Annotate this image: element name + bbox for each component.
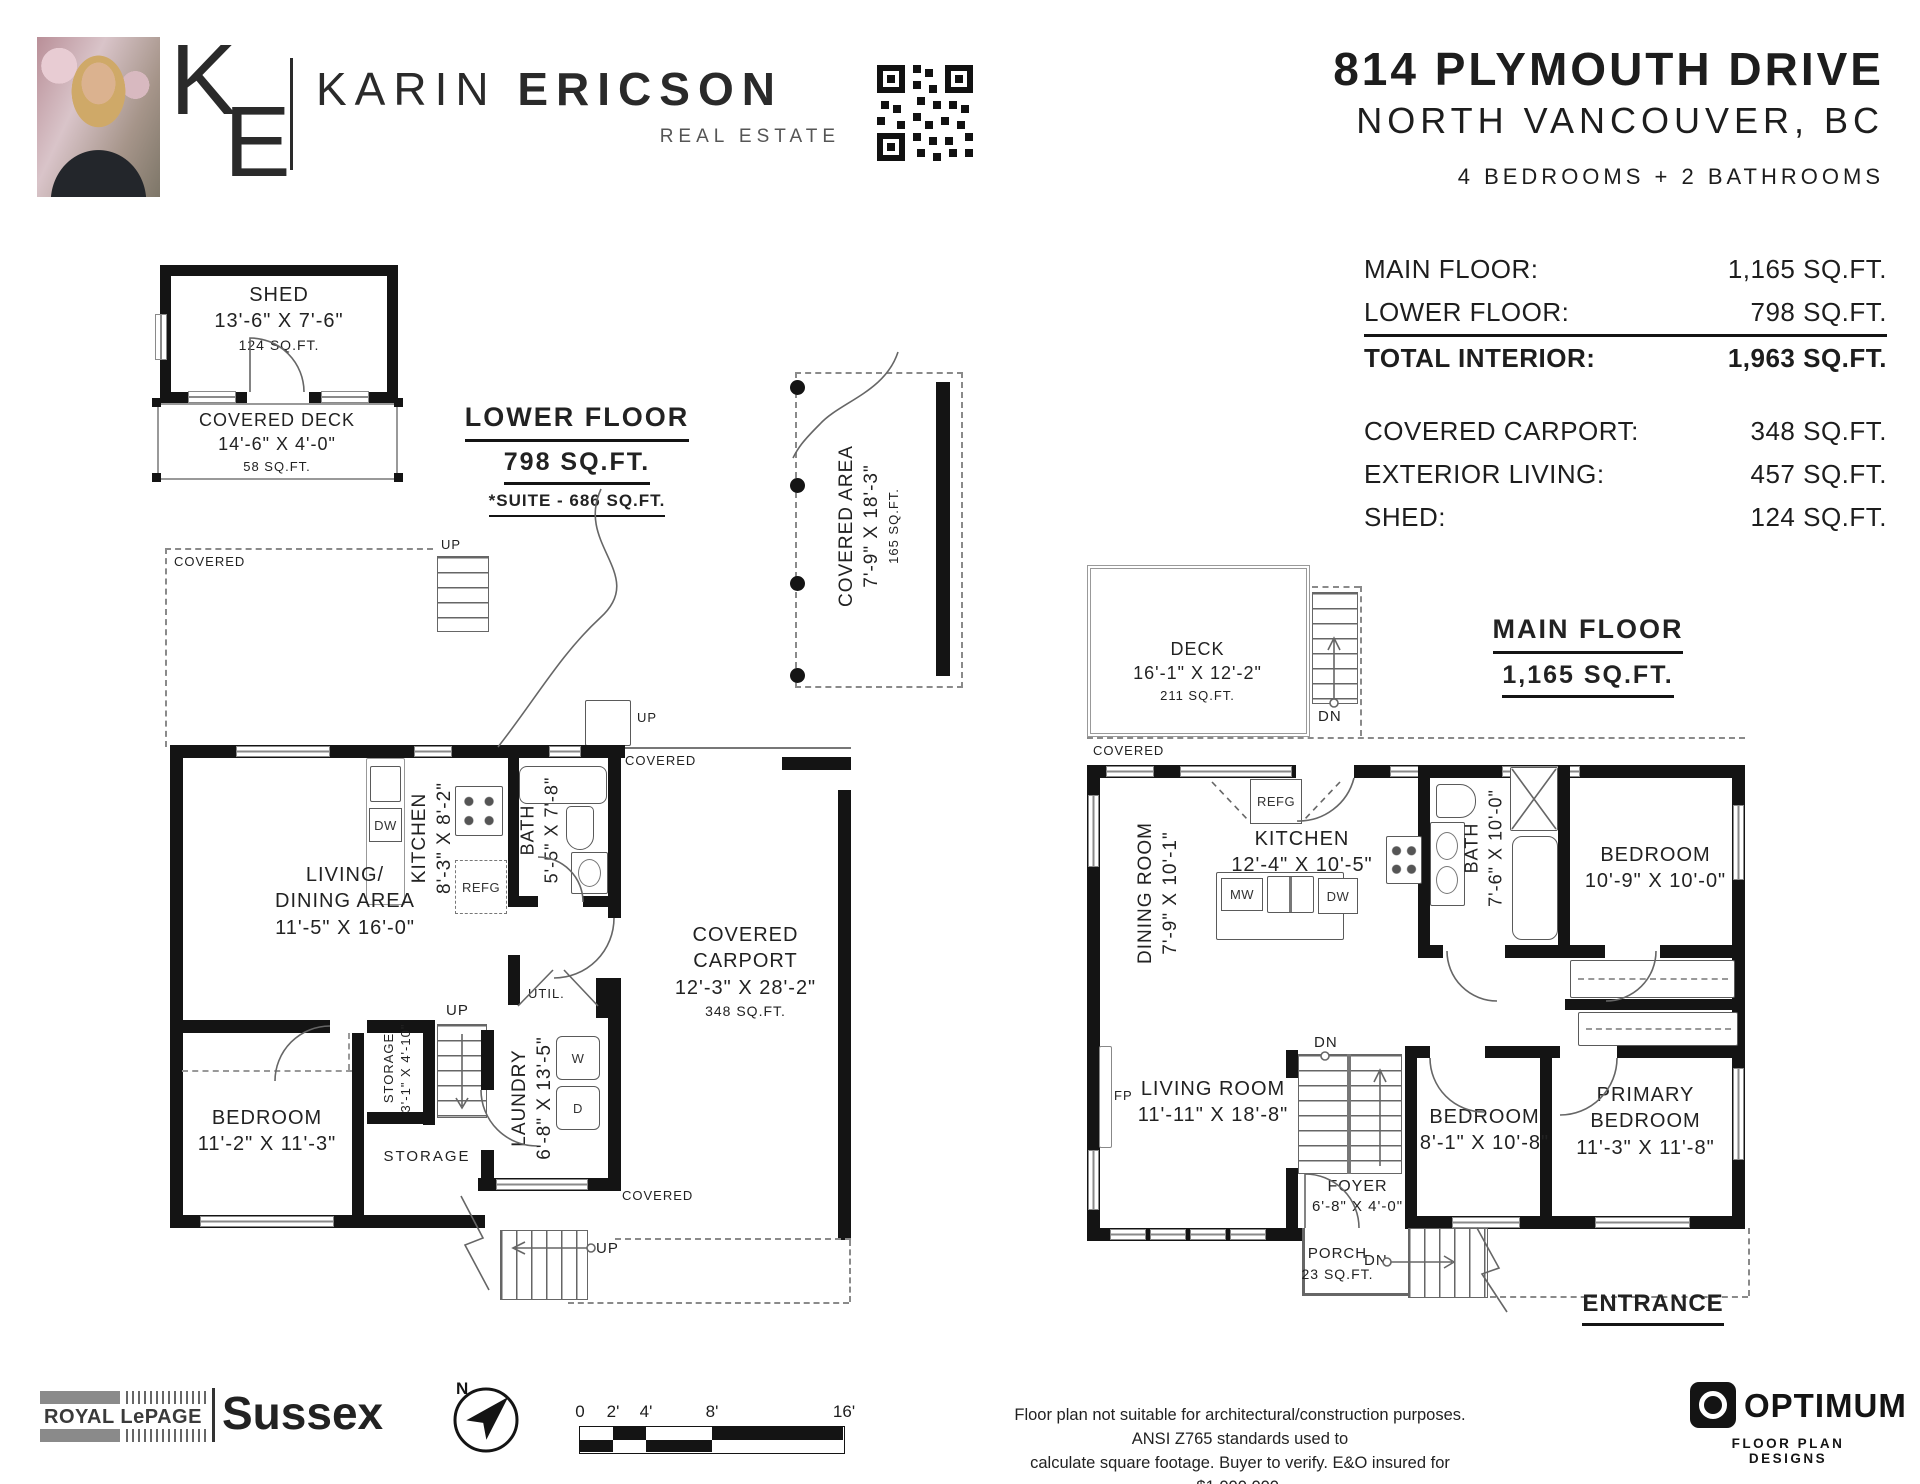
window: [1106, 766, 1154, 777]
carport-roofline: [625, 747, 851, 749]
entrance-label: ENTRANCE: [1578, 1288, 1728, 1326]
lower-floor-title: LOWER FLOOR 798 SQ.FT. *SUITE - 686 SQ.F…: [452, 400, 702, 517]
designer-sub: FLOOR PLAN DESIGNS: [1692, 1436, 1884, 1466]
sink-basin: [578, 859, 601, 887]
stat-row: COVERED CARPORT: 348 SQ.FT.: [1364, 410, 1887, 453]
stat-row: SHED: 124 SQ.FT.: [1364, 496, 1887, 539]
room-dims: 10'-9" X 10'-0": [1568, 868, 1743, 894]
room-area: 348 SQ.FT.: [658, 1002, 833, 1020]
agent-name: KARIN ERICSON: [316, 62, 840, 116]
room-name: FOYER: [1310, 1176, 1405, 1197]
washer: W: [556, 1036, 600, 1080]
refrigerator: REFG: [1250, 779, 1302, 824]
stat-label: SHED:: [1364, 502, 1446, 533]
shower: [1510, 767, 1558, 831]
agent-first-name: KARIN: [316, 63, 497, 115]
floor-area: 1,165 SQ.FT.: [1502, 659, 1673, 698]
beds-baths: 4 BEDROOMS + 2 BATHROOMS: [1333, 164, 1884, 190]
stat-label: EXTERIOR LIVING:: [1364, 459, 1605, 490]
wall: [608, 745, 621, 918]
window: [1180, 766, 1292, 777]
wall: [583, 896, 621, 907]
room-name: COVERED CARPORT: [658, 922, 833, 975]
scale-tick: 0: [575, 1402, 584, 1422]
stat-row: MAIN FLOOR: 1,165 SQ.FT.: [1364, 248, 1887, 291]
util-label: UTIL.: [528, 986, 565, 1001]
window: [155, 314, 167, 360]
fireplace: [1099, 1046, 1112, 1148]
wall: [481, 1150, 494, 1191]
window: [1230, 1229, 1266, 1240]
up-label: UP: [596, 1240, 619, 1257]
door-opening: [247, 392, 309, 403]
covered-label: COVERED: [174, 554, 245, 569]
post: [790, 380, 805, 395]
stat-label: COVERED CARPORT:: [1364, 416, 1639, 447]
wall: [596, 978, 608, 1018]
window: [1595, 1217, 1690, 1228]
wall: [352, 1033, 364, 1215]
sink-basin: [1436, 866, 1458, 894]
kitchen-sink: [370, 766, 401, 802]
toilet: [566, 806, 594, 850]
door-arc: [1447, 951, 1497, 1001]
wall: [782, 757, 851, 770]
agent-photo: [37, 37, 160, 197]
break-zigzag: [461, 1196, 489, 1290]
room-label-primary-bedroom: PRIMARY BEDROOM 11'-3" X 11'-8": [1568, 1082, 1723, 1161]
disclaimer-line1: Floor plan not suitable for architectura…: [1000, 1404, 1480, 1452]
corner-tick: [152, 473, 161, 482]
designer-name: OPTIMUM: [1744, 1387, 1907, 1425]
scale-tick: 8': [706, 1402, 719, 1422]
sink-basin: [1436, 832, 1458, 860]
compass-north-label: N: [456, 1379, 468, 1398]
stairs: [437, 556, 489, 632]
room-label-foyer: FOYER 6'-8" X 4'-0": [1310, 1176, 1405, 1217]
covered-boundary: [165, 548, 167, 747]
closet-dashed: [182, 1070, 352, 1072]
disclaimer-line2: calculate square footage. Buyer to verif…: [1000, 1452, 1480, 1484]
door-opening: [1296, 765, 1354, 778]
room-label-bedroom2: BEDROOM 8'-1" X 10'-8": [1412, 1104, 1557, 1157]
room-label-laundry: LAUNDRY 6'-8" X 13'-5": [507, 993, 557, 1203]
covered-boundary: [165, 548, 433, 550]
room-label-shed: SHED 13'-6" X 7'-6" 124 SQ.FT.: [179, 282, 379, 354]
wall: [1286, 1168, 1298, 1228]
dishwasher-label: DW: [374, 818, 397, 833]
window: [1452, 1217, 1520, 1228]
stat-value: 1,963 SQ.FT.: [1728, 343, 1887, 374]
window: [188, 391, 236, 403]
window: [200, 1216, 334, 1227]
qr-code: [873, 61, 977, 165]
wall: [508, 955, 520, 1005]
microwave-label: MW: [1230, 887, 1254, 902]
room-dims: 6'-8" X 4'-0": [1310, 1197, 1405, 1217]
window: [236, 746, 330, 757]
dn-label: DN: [1364, 1252, 1388, 1269]
bathtub: [1512, 836, 1558, 940]
covered-label: COVERED: [1093, 743, 1164, 758]
stat-value: 457 SQ.FT.: [1751, 459, 1888, 490]
room-name: PRIMARY BEDROOM: [1568, 1082, 1723, 1135]
stat-label: MAIN FLOOR:: [1364, 254, 1539, 285]
dishwasher: DW: [1318, 878, 1358, 914]
carport-boundary: [568, 1302, 849, 1304]
room-dims: 16'-1" X 12'-2": [1115, 662, 1280, 686]
room-area: 165 SQ.FT.: [885, 406, 902, 646]
up-label: UP: [637, 710, 657, 725]
room-label-bedroom1: BEDROOM 10'-9" X 10'-0": [1568, 842, 1743, 895]
main-floor-title: MAIN FLOOR 1,165 SQ.FT.: [1468, 612, 1708, 698]
stat-value: 348 SQ.FT.: [1751, 416, 1888, 447]
dishwasher-label: DW: [1327, 889, 1350, 904]
carport-boundary: [849, 1240, 851, 1302]
room-name: SHED: [179, 282, 379, 308]
stove: [1386, 836, 1422, 884]
stat-value: 124 SQ.FT.: [1751, 502, 1888, 533]
room-dims: 8'-1" X 10'-8": [1412, 1130, 1557, 1156]
fireplace-label: FP: [1114, 1088, 1133, 1103]
covered-boundary: [1087, 737, 1745, 739]
wall: [1660, 945, 1745, 958]
stairs-boundary: [1360, 586, 1362, 736]
room-dims: 3'-1" X 4'-10": [397, 1008, 414, 1128]
stairs: [500, 1230, 588, 1300]
stair-rail: [1347, 1054, 1351, 1174]
room-name: COVERED DECK: [167, 409, 387, 433]
stair-node: [587, 1244, 595, 1252]
window: [1088, 1150, 1099, 1210]
stat-value: 798 SQ.FT.: [1751, 297, 1888, 328]
room-name: BATH: [1460, 753, 1484, 943]
room-dims: 7'-6" X 10'-0": [1484, 753, 1508, 943]
room-label-main-bath: BATH 7'-6" X 10'-0": [1460, 753, 1508, 943]
carport-boundary: [615, 1238, 851, 1240]
room-label-carport: COVERED CARPORT 12'-3" X 28'-2" 348 SQ.F…: [658, 922, 833, 1021]
logo-bar: [40, 1429, 120, 1442]
brand-secondary: Sussex: [222, 1386, 383, 1440]
wall: [160, 265, 398, 276]
closet-rod: [1578, 978, 1728, 980]
dryer-label: D: [573, 1101, 583, 1116]
logo-hatch: [126, 1429, 206, 1442]
closet-dashed: [348, 1033, 350, 1070]
entrance-text: ENTRANCE: [1582, 1288, 1723, 1326]
room-name: BEDROOM: [1412, 1104, 1557, 1130]
room-dims: 13'-6" X 7'-6": [179, 308, 379, 334]
royal-lepage-logo: ROYAL LePAGE Sussex: [40, 1388, 380, 1444]
storage-label: STORAGE: [382, 1148, 472, 1165]
room-area: 124 SQ.FT.: [179, 336, 379, 354]
stat-value: 1,165 SQ.FT.: [1728, 254, 1887, 285]
wall: [1505, 945, 1605, 958]
room-name: BEDROOM: [1568, 842, 1743, 868]
room-area: 58 SQ.FT.: [167, 458, 387, 475]
covered-label: COVERED: [622, 1188, 693, 1203]
room-name: LIVING ROOM: [1118, 1076, 1308, 1102]
dishwasher: DW: [369, 808, 402, 842]
scale-bar: 0 2' 4' 8' 16': [580, 1402, 860, 1458]
room-dims: 7'-9" X 18'-3": [859, 406, 884, 646]
room-label-living-dining: LIVING/ DINING AREA 11'-5" X 16'-0": [235, 862, 455, 941]
stat-label: TOTAL INTERIOR:: [1364, 343, 1595, 374]
room-label-storage-closet: STORAGE 3'-1" X 4'-10": [380, 1008, 414, 1128]
disclaimer: Floor plan not suitable for architectura…: [1000, 1404, 1480, 1484]
room-dims: 7'-9" X 10'-1": [1158, 778, 1183, 1008]
scale-tick: 4': [640, 1402, 653, 1422]
room-area: 211 SQ.FT.: [1115, 687, 1280, 704]
room-label-lower-bath: BATH 5'-5" X 7'-8": [516, 740, 564, 920]
corner-tick: [152, 398, 161, 407]
wall: [1418, 945, 1443, 958]
stairs-boundary: [1312, 586, 1360, 588]
room-dims: 11'-3" X 11'-8": [1568, 1135, 1723, 1161]
wall: [838, 790, 851, 1240]
kitchen-sink: [1267, 876, 1314, 913]
dn-label: DN: [1314, 1034, 1338, 1051]
area-stats: MAIN FLOOR: 1,165 SQ.FT. LOWER FLOOR: 79…: [1364, 248, 1887, 539]
room-name: LIVING/ DINING AREA: [235, 862, 455, 915]
window: [321, 391, 369, 403]
dryer: D: [556, 1086, 600, 1130]
property-address: 814 PLYMOUTH DRIVE NORTH VANCOUVER, BC 4…: [1333, 42, 1884, 190]
door-arc: [275, 1026, 330, 1081]
stat-row: EXTERIOR LIVING: 457 SQ.FT.: [1364, 453, 1887, 496]
refrigerator-label: REFG: [1257, 794, 1295, 809]
address-line2: NORTH VANCOUVER, BC: [1333, 100, 1884, 142]
entry-step: [585, 700, 631, 746]
agent-last-name: ERICSON: [517, 63, 783, 115]
refrigerator: REFG: [455, 860, 507, 914]
closet-rod: [1586, 1028, 1731, 1030]
room-dims: 5'-5" X 7'-8": [540, 740, 564, 920]
floor-title: MAIN FLOOR: [1493, 612, 1684, 654]
room-name: LAUNDRY: [507, 993, 532, 1203]
optimum-logo: OPTIMUM FLOOR PLAN DESIGNS: [1690, 1382, 1890, 1462]
optimum-icon: [1690, 1382, 1736, 1428]
window: [1733, 1068, 1744, 1160]
room-name: COVERED AREA: [834, 406, 859, 646]
stove: [455, 786, 503, 836]
window: [1088, 795, 1099, 867]
room-label-covered-area: COVERED AREA 7'-9" X 18'-3" 165 SQ.FT.: [834, 406, 902, 646]
up-label: UP: [441, 537, 461, 552]
suite-note: *SUITE - 686 SQ.FT.: [489, 490, 666, 517]
microwave: MW: [1221, 878, 1263, 911]
stairs: [1408, 1228, 1488, 1298]
room-name: KITCHEN: [1222, 826, 1382, 852]
floor-title: LOWER FLOOR: [465, 400, 689, 442]
scale-tick: 2': [607, 1402, 620, 1422]
stat-row: TOTAL INTERIOR: 1,963 SQ.FT.: [1364, 337, 1887, 380]
room-dims: 14'-6" X 4'-0": [167, 433, 387, 457]
wall: [387, 265, 398, 403]
logo-hatch: [126, 1391, 206, 1404]
agent-subtitle: REAL ESTATE: [316, 126, 840, 148]
plan-annotations-overlay: [0, 0, 1920, 1484]
stat-row: LOWER FLOOR: 798 SQ.FT.: [1364, 291, 1887, 337]
room-label-covered-deck: COVERED DECK 14'-6" X 4'-0" 58 SQ.FT.: [167, 409, 387, 475]
room-label-main-kitchen: KITCHEN 12'-4" X 10'-5": [1222, 826, 1382, 879]
wall: [608, 978, 621, 1191]
room-name: DINING ROOM: [1133, 778, 1158, 1008]
boundary: [1748, 1228, 1750, 1296]
room-name: BATH: [516, 740, 540, 920]
covered-label: COVERED: [625, 753, 696, 768]
wall: [936, 382, 950, 676]
door-arc: [554, 918, 614, 978]
corner-tick: [394, 398, 403, 407]
post: [790, 478, 805, 493]
window: [1190, 1229, 1226, 1240]
window: [1110, 1229, 1146, 1240]
room-dims: 12'-3" X 28'-2": [658, 975, 833, 1001]
dn-label: DN: [1318, 708, 1342, 725]
washer-label: W: [572, 1051, 585, 1066]
room-dims: 11'-11" X 18'-8": [1118, 1102, 1308, 1128]
room-label-deck: DECK 16'-1" X 12'-2" 211 SQ.FT.: [1115, 638, 1280, 704]
room-dims: 6'-8" X 13'-5": [532, 993, 557, 1203]
room-name: STORAGE: [380, 1008, 397, 1128]
room-name: BEDROOM: [182, 1105, 352, 1131]
room-label-living-room: LIVING ROOM 11'-11" X 18'-8": [1118, 1076, 1308, 1129]
post: [790, 576, 805, 591]
logo-divider: [212, 1388, 215, 1442]
room-label-dining: DINING ROOM 7'-9" X 10'-1": [1133, 778, 1183, 1008]
wall: [481, 1030, 494, 1090]
brand-monogram-e: E: [224, 92, 291, 192]
wall: [1286, 1050, 1298, 1078]
door-arc: [1297, 778, 1354, 821]
address-line1: 814 PLYMOUTH DRIVE: [1333, 42, 1884, 96]
room-dims: 11'-2" X 11'-3": [182, 1131, 352, 1157]
wall: [1565, 999, 1745, 1010]
stairs: [1312, 592, 1358, 704]
brand-primary: ROYAL LePAGE: [40, 1406, 206, 1429]
header-divider: [290, 58, 293, 170]
post: [790, 668, 805, 683]
stairs: [437, 1024, 487, 1118]
logo-bar: [40, 1391, 120, 1404]
north-compass: N: [448, 1378, 526, 1464]
scale-bar-body: [579, 1426, 845, 1454]
refrigerator-label: REFG: [462, 880, 500, 895]
corner-tick: [394, 473, 403, 482]
wall: [170, 1020, 330, 1033]
window: [1150, 1229, 1186, 1240]
stat-label: LOWER FLOOR:: [1364, 297, 1569, 328]
room-name: DECK: [1115, 638, 1280, 662]
floor-area: 798 SQ.FT.: [504, 446, 650, 485]
up-label: UP: [446, 1002, 469, 1019]
room-label-lower-bedroom: BEDROOM 11'-2" X 11'-3": [182, 1105, 352, 1158]
scale-tick: 16': [833, 1402, 855, 1422]
wall: [1617, 1046, 1745, 1058]
room-dims: 11'-5" X 16'-0": [235, 915, 455, 941]
